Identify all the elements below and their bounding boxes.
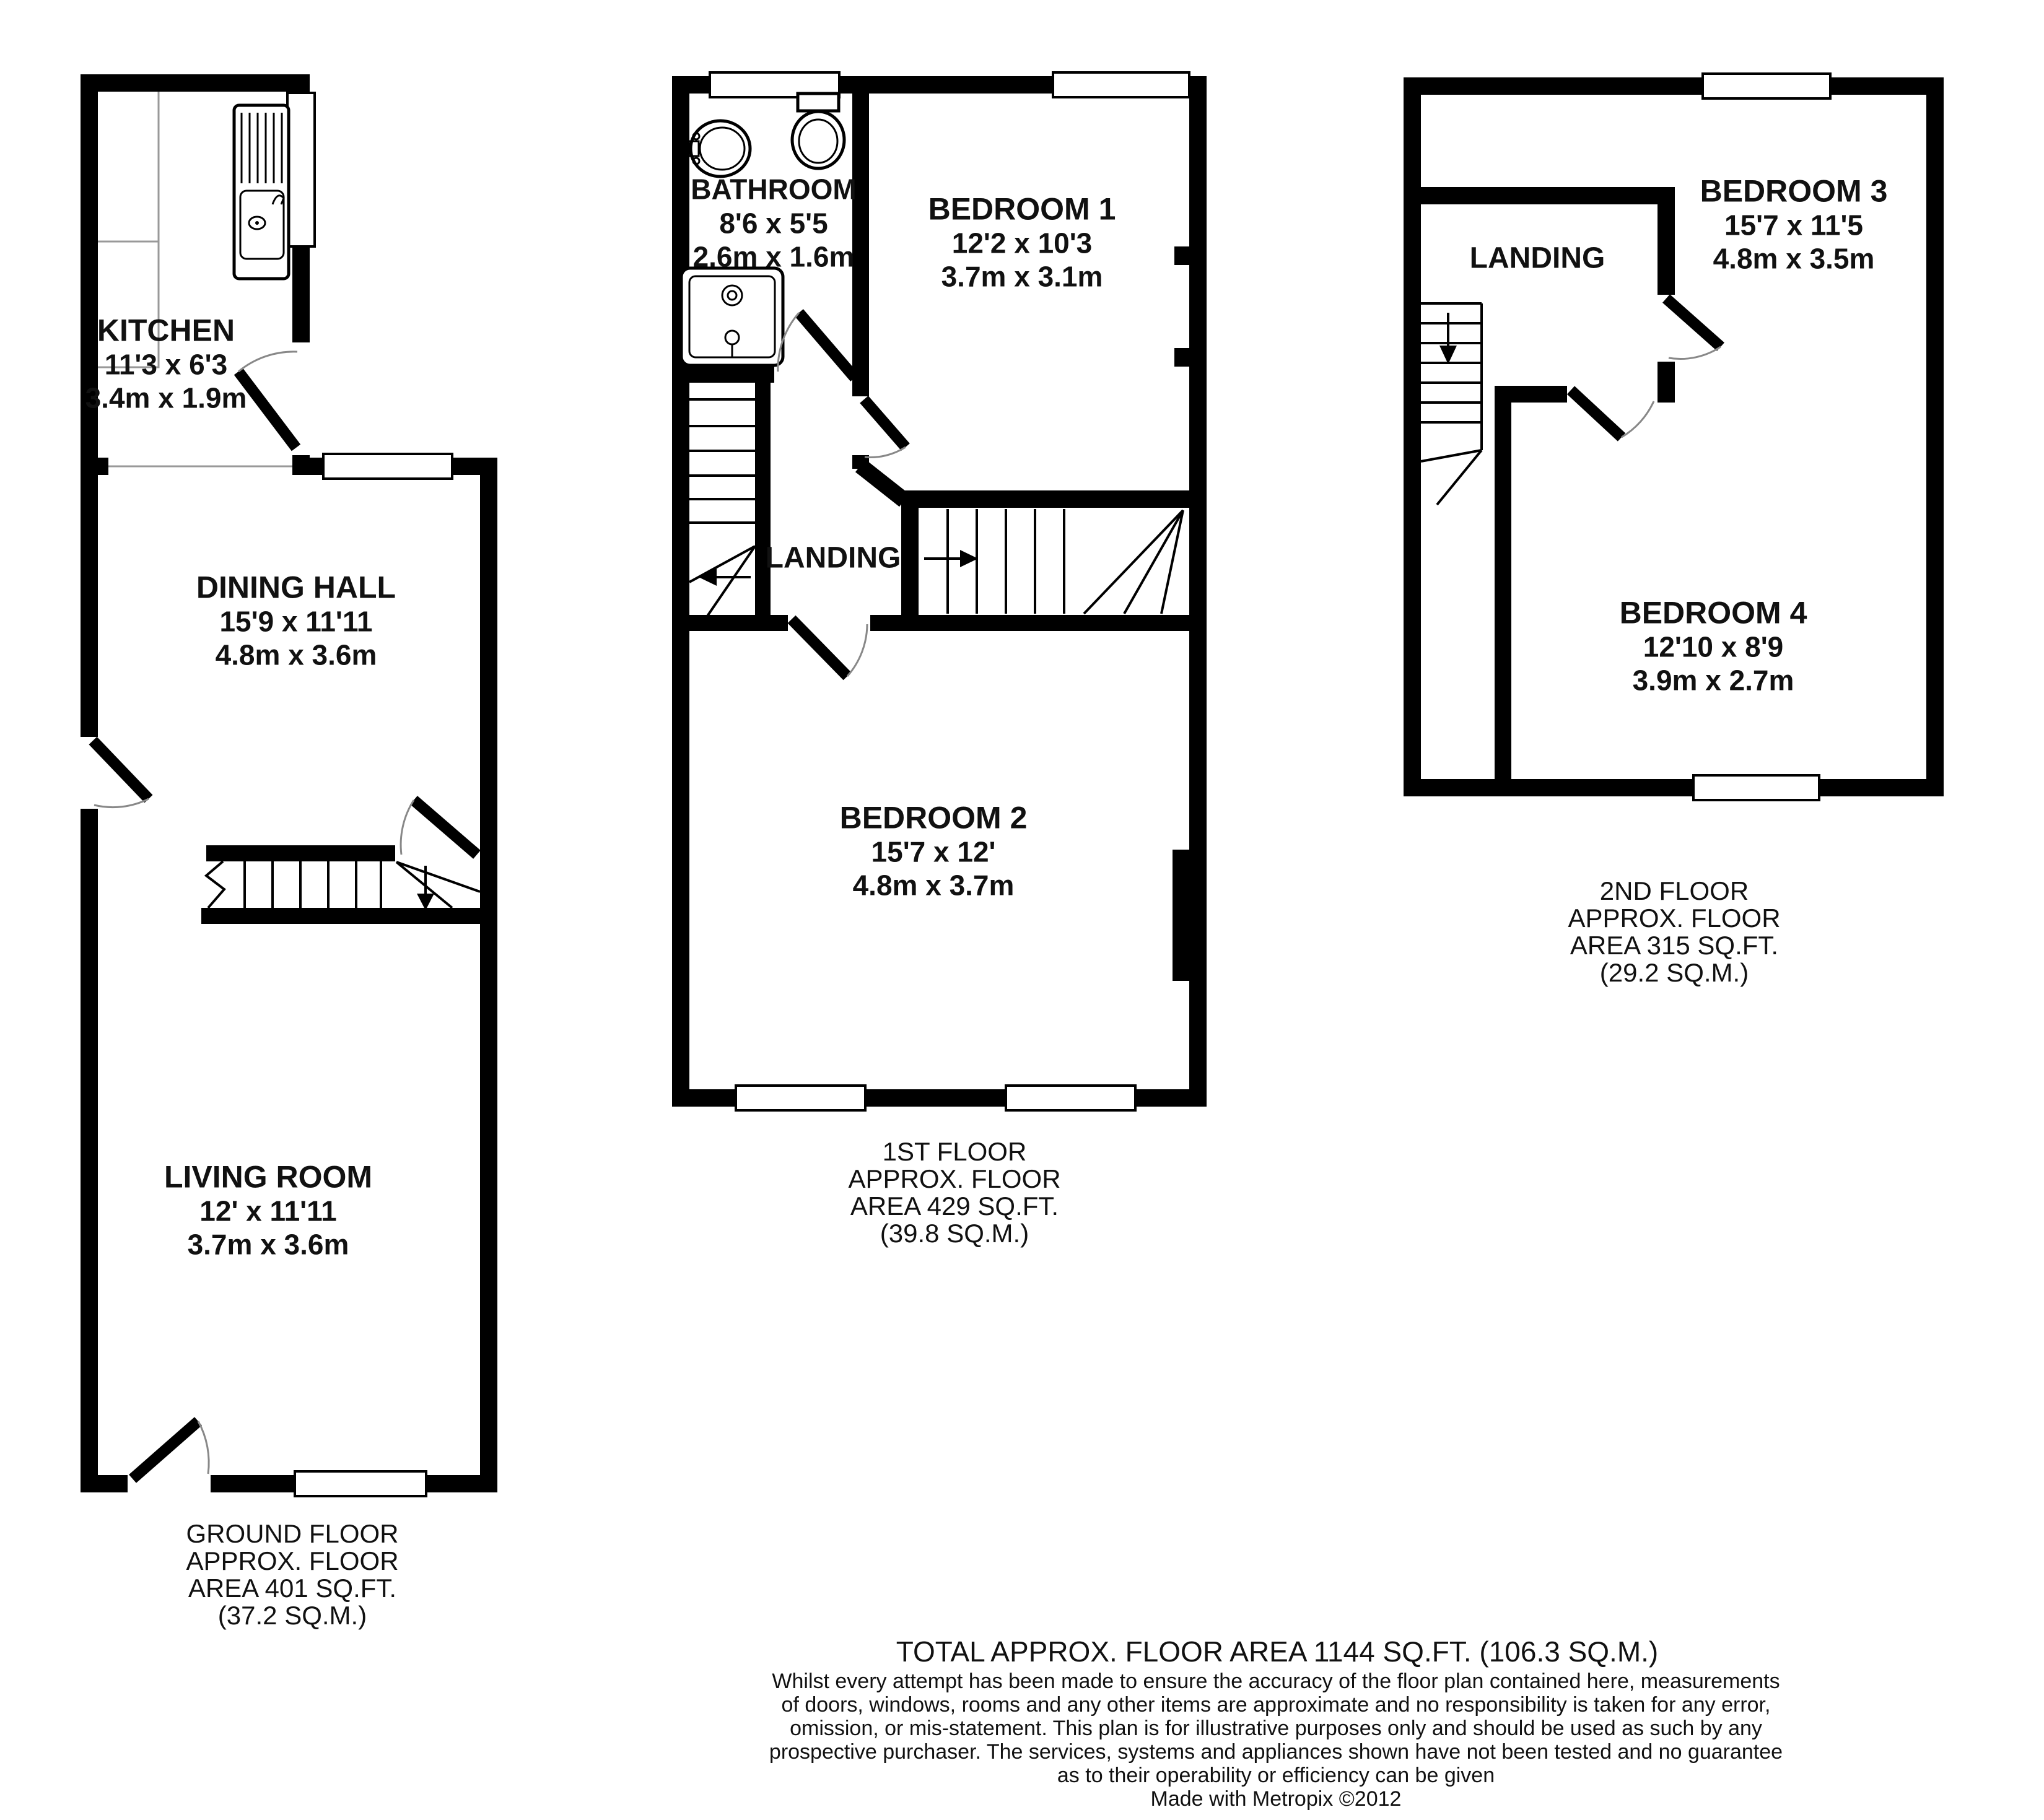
- bedroom1-label: BEDROOM 1 12'2 x 10'3 3.7m x 3.1m: [928, 193, 1116, 294]
- bedroom2-window-left: [736, 1086, 865, 1110]
- room-size-metric: 4.8m x 3.7m: [840, 869, 1028, 902]
- bedroom2-window-right: [1006, 1086, 1135, 1110]
- room-name: BEDROOM 1: [928, 193, 1116, 227]
- room-size-metric: 3.7m x 3.1m: [928, 260, 1116, 294]
- room-size-imperial: 12' x 11'11: [164, 1195, 372, 1228]
- shower-icon: [681, 268, 783, 365]
- first-stairs-up: [924, 509, 1183, 614]
- room-size-imperial: 12'10 x 8'9: [1620, 630, 1807, 664]
- kitchen-window: [287, 93, 315, 246]
- living-room-window: [295, 1471, 426, 1496]
- disclaimer-line: as to their operability or efficiency ca…: [749, 1764, 1802, 1787]
- caption-line: GROUND FLOOR: [186, 1520, 398, 1548]
- stair-bottom-wall: [201, 908, 480, 924]
- ground-floor-plan: [62, 56, 520, 1517]
- bedroom3-door: [1666, 298, 1721, 359]
- disclaimer-text: Whilst every attempt has been made to en…: [749, 1670, 1802, 1811]
- bathroom-basin-icon: [689, 121, 750, 176]
- second-landing-label: LANDING: [1470, 242, 1605, 276]
- stair-door: [401, 800, 477, 855]
- bedroom2-door: [792, 619, 867, 676]
- bedroom3-window: [1703, 74, 1830, 98]
- room-size-imperial: 15'7 x 12': [840, 835, 1028, 869]
- bedroom4-label: BEDROOM 4 12'10 x 8'9 3.9m x 2.7m: [1620, 596, 1807, 697]
- room-name: KITCHEN: [85, 314, 247, 348]
- first-stairs-down: [689, 399, 755, 622]
- room-name: BEDROOM 4: [1620, 596, 1807, 630]
- ground-walls: [81, 74, 497, 1492]
- room-size-metric: 3.9m x 2.7m: [1620, 664, 1807, 697]
- first-landing-label: LANDING: [766, 541, 901, 575]
- room-name: LIVING ROOM: [164, 1160, 372, 1195]
- caption-line: (37.2 SQ.M.): [186, 1602, 398, 1629]
- bedroom4-window: [1693, 775, 1819, 800]
- caption-line: AREA 429 SQ.FT.: [848, 1193, 1060, 1220]
- first-floor-caption: 1ST FLOOR APPROX. FLOOR AREA 429 SQ.FT. …: [848, 1138, 1060, 1247]
- stair-break-icon: [206, 861, 224, 908]
- room-size-metric: 3.4m x 1.9m: [85, 381, 247, 415]
- room-size-imperial: 12'2 x 10'3: [928, 227, 1116, 260]
- bedroom3-label: BEDROOM 3 15'7 x 11'5 4.8m x 3.5m: [1700, 175, 1888, 276]
- kitchen-label: KITCHEN 11'3 x 6'3 3.4m x 1.9m: [85, 314, 247, 415]
- room-name: LANDING: [766, 541, 901, 575]
- stair-top-wall: [206, 845, 395, 861]
- caption-line: AREA 401 SQ.FT.: [186, 1575, 398, 1602]
- room-size-metric: 4.8m x 3.6m: [196, 638, 396, 672]
- second-floor-caption: 2ND FLOOR APPROX. FLOOR AREA 315 SQ.FT. …: [1568, 877, 1780, 986]
- caption-line: (29.2 SQ.M.): [1568, 959, 1780, 986]
- dining-hall-label: DINING HALL 15'9 x 11'11 4.8m x 3.6m: [196, 571, 396, 672]
- room-size-metric: 4.8m x 3.5m: [1700, 242, 1888, 276]
- toilet-icon: [792, 94, 844, 168]
- living-room-door: [133, 1421, 209, 1479]
- bedroom4-door: [1571, 390, 1654, 437]
- room-size-imperial: 15'9 x 11'11: [196, 605, 396, 638]
- room-name: BEDROOM 2: [840, 801, 1028, 835]
- bedroom1-door: [864, 399, 906, 457]
- stairs-down-arrow-icon: [417, 866, 434, 910]
- caption-line: APPROX. FLOOR: [848, 1165, 1060, 1193]
- stairs-down-arrow-icon: [1439, 313, 1457, 364]
- caption-line: AREA 315 SQ.FT.: [1568, 932, 1780, 959]
- room-name: BEDROOM 3: [1700, 175, 1888, 209]
- room-name: DINING HALL: [196, 571, 396, 605]
- ground-stairs: [206, 861, 480, 910]
- room-size-imperial: 11'3 x 6'3: [85, 348, 247, 381]
- stairs-up-arrow-icon: [924, 550, 978, 567]
- dining-window: [323, 454, 452, 479]
- caption-line: APPROX. FLOOR: [186, 1548, 398, 1575]
- ground-floor-caption: GROUND FLOOR APPROX. FLOOR AREA 401 SQ.F…: [186, 1520, 398, 1629]
- living-room-label: LIVING ROOM 12' x 11'11 3.7m x 3.6m: [164, 1160, 372, 1261]
- metropix-credit: Made with Metropix ©2012: [749, 1787, 1802, 1811]
- second-stairs: [1421, 303, 1482, 505]
- disclaimer-line: prospective purchaser. The services, sys…: [749, 1740, 1802, 1764]
- caption-line: APPROX. FLOOR: [1568, 905, 1780, 932]
- bedroom1-window: [1053, 72, 1189, 97]
- stairs-left-arrow-icon: [699, 568, 751, 586]
- kitchen-door: [238, 352, 297, 448]
- floorplan-page: KITCHEN 11'3 x 6'3 3.4m x 1.9m DINING HA…: [0, 0, 2044, 1820]
- caption-line: (39.8 SQ.M.): [848, 1220, 1060, 1247]
- room-name: LANDING: [1470, 242, 1605, 276]
- disclaimer-line: Whilst every attempt has been made to en…: [749, 1670, 1802, 1693]
- room-size-imperial: 8'6 x 5'5: [691, 207, 856, 240]
- caption-line: 1ST FLOOR: [848, 1138, 1060, 1165]
- room-size-metric: 2.6m x 1.6m: [691, 240, 856, 274]
- disclaimer-line: of doors, windows, rooms and any other i…: [749, 1693, 1802, 1717]
- ground-windows: [287, 93, 452, 1496]
- room-name: BATHROOM: [691, 173, 856, 207]
- kitchen-sink-unit-icon: [234, 105, 289, 279]
- total-area-line: TOTAL APPROX. FLOOR AREA 1144 SQ.FT. (10…: [896, 1635, 1659, 1668]
- bathroom-door: [778, 313, 855, 378]
- front-door: [93, 741, 149, 808]
- room-size-imperial: 15'7 x 11'5: [1700, 209, 1888, 242]
- bathroom-label: BATHROOM 8'6 x 5'5 2.6m x 1.6m: [691, 173, 856, 274]
- disclaimer-line: omission, or mis-statement. This plan is…: [749, 1717, 1802, 1740]
- bedroom2-label: BEDROOM 2 15'7 x 12' 4.8m x 3.7m: [840, 801, 1028, 902]
- caption-line: 2ND FLOOR: [1568, 877, 1780, 905]
- room-size-metric: 3.7m x 3.6m: [164, 1228, 372, 1261]
